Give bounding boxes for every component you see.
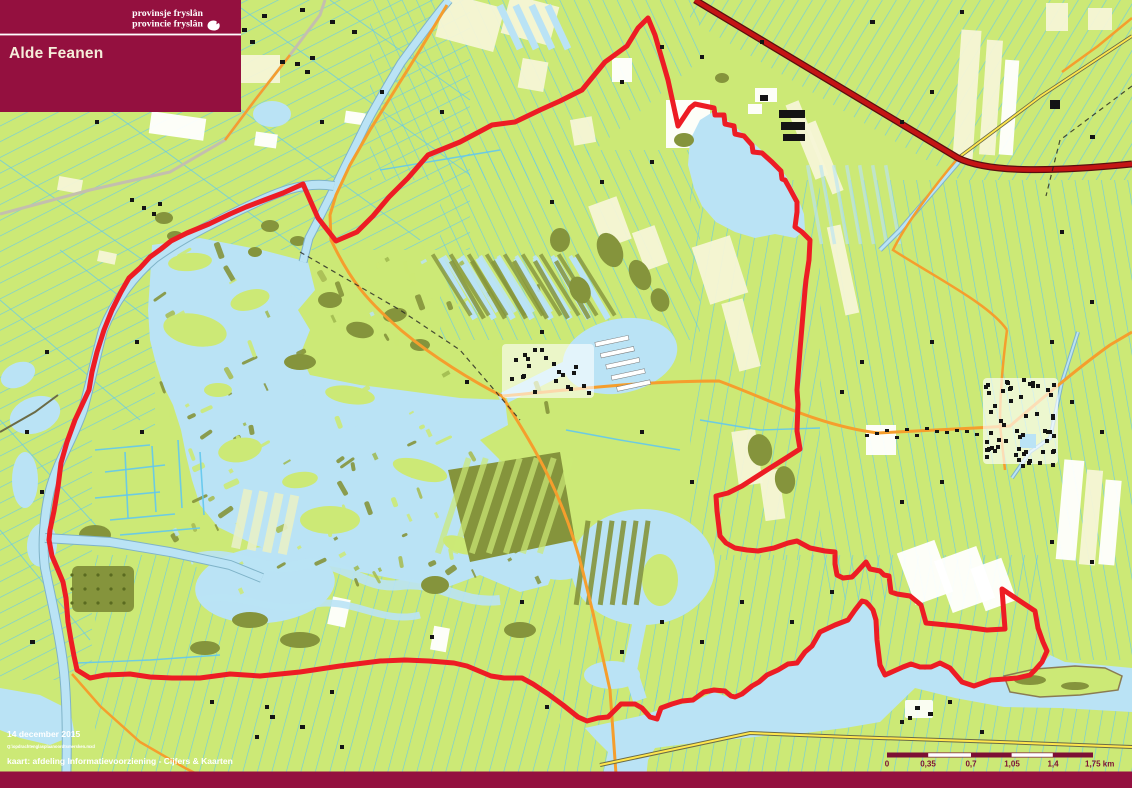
svg-text:1,75 km: 1,75 km xyxy=(1085,760,1114,769)
svg-text:1,05: 1,05 xyxy=(1004,760,1020,769)
svg-text:0,7: 0,7 xyxy=(965,760,977,769)
svg-text:14 december 2015: 14 december 2015 xyxy=(7,729,81,739)
svg-text:provincie fryslân: provincie fryslân xyxy=(132,19,203,30)
svg-text:0,35: 0,35 xyxy=(920,760,936,769)
svg-text:0: 0 xyxy=(885,760,890,769)
svg-text:Q:\opdrachtenglasplaanoordtsme: Q:\opdrachtenglasplaanoordtsmersken.mxd xyxy=(7,744,95,749)
svg-text:1,4: 1,4 xyxy=(1047,760,1059,769)
svg-text:Alde Feanen: Alde Feanen xyxy=(9,45,103,62)
svg-text:kaart: afdeling Informatievoor: kaart: afdeling Informatievoorziening - … xyxy=(7,756,233,766)
svg-text:provinsje fryslân: provinsje fryslân xyxy=(132,8,203,19)
